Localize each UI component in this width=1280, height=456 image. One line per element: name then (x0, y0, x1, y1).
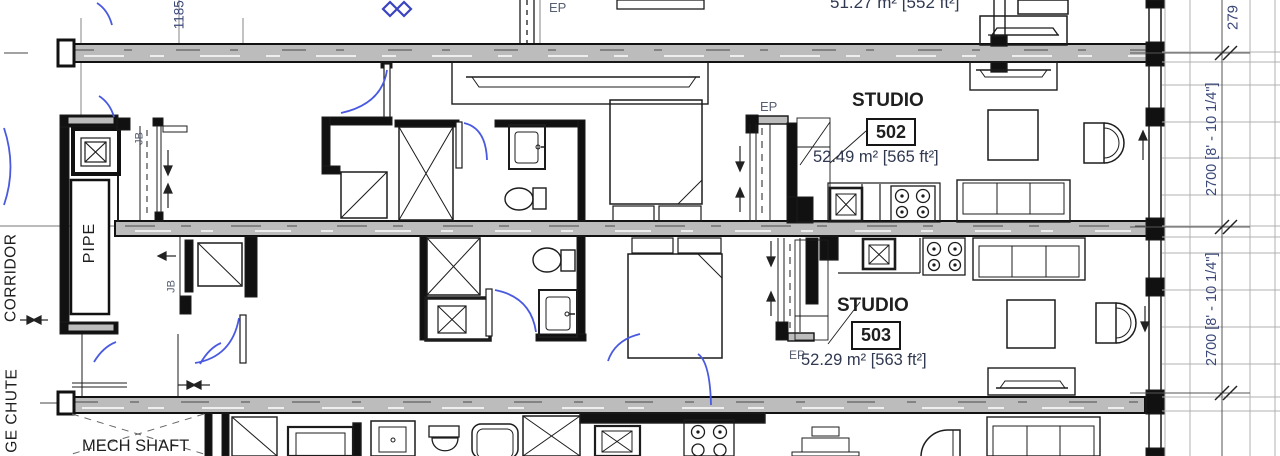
ep-closet-503 (776, 238, 818, 341)
plan-linework (0, 0, 1280, 456)
media-console-502 (452, 62, 708, 104)
tv-console-503 (988, 368, 1075, 395)
table-503 (1007, 300, 1055, 348)
kitchen-503 (820, 236, 965, 275)
unit-503-area: 52.29 m² [563 ft²] (801, 352, 927, 369)
sink-502 (509, 125, 546, 169)
diamond-symbol (383, 2, 411, 16)
pipe-label: PIPE (82, 208, 98, 278)
sofa-502 (957, 180, 1070, 222)
sofa-bottom (987, 417, 1100, 456)
unit-502-area: 52.49 m² [565 ft²] (813, 149, 939, 166)
tv-console-502-north (970, 62, 1057, 90)
unit-502-number-box: 502 (866, 118, 916, 146)
bottom-unit-fixtures (232, 413, 1100, 456)
corridor-label: CORRIDOR (3, 223, 19, 333)
bed-502 (610, 100, 702, 221)
stove-bottom (684, 420, 734, 456)
unit-502-closet-nook (322, 117, 392, 218)
closet-503 (427, 238, 480, 295)
ep-label-502: EP (760, 100, 777, 113)
mech-shaft-label: MECH SHAFT (82, 438, 189, 455)
window-wall (1146, 0, 1164, 456)
jb-label-503: JB (167, 275, 178, 299)
toilet-502 (505, 188, 546, 210)
unit-502-bathroom (495, 120, 585, 221)
dimension-top-left: 1185 (172, 0, 186, 35)
tub-bottom (472, 424, 518, 456)
dimension-right-top: 279 (1226, 0, 1241, 38)
unit-502-name: STUDIO (852, 91, 924, 110)
dimension-right-upper: 2700 [8' - 10 1/4"] (1205, 59, 1220, 219)
garbage-chute-label: GE CHUTE (4, 361, 20, 456)
unit-503-number-box: 503 (851, 321, 901, 350)
washer-503 (426, 298, 490, 340)
washer-bottom (595, 426, 640, 456)
armchair-502 (1084, 123, 1124, 163)
closet-bottom (523, 416, 580, 456)
jb-shaft-502 (117, 118, 187, 221)
toilet-bottom (429, 426, 459, 451)
wall-middle (115, 221, 1152, 236)
unit-503-number: 503 (861, 325, 891, 346)
kitchen-502 (828, 183, 940, 222)
sofa-503 (973, 238, 1085, 280)
armchair-bottom (921, 430, 960, 456)
stove-503 (923, 238, 965, 275)
corridor-lower-door (72, 334, 178, 397)
sink-bottom (371, 421, 415, 456)
wall-bottom (58, 392, 1145, 414)
sink-503 (539, 290, 577, 337)
kitchen-sink-502 (830, 188, 862, 221)
unit-502-wardrobe (395, 120, 462, 220)
floor-plan-sheet: CORRIDOR GE CHUTE PIPE MECH SHAFT JB JB … (0, 0, 1280, 456)
ep-closet-502 (746, 115, 830, 223)
unit-502-number: 502 (876, 122, 906, 143)
upper-unit-area: 51.27 m² [552 ft²] (830, 0, 959, 11)
jb-label-502: JB (135, 127, 146, 151)
kitchen-sink-503 (863, 239, 895, 269)
elevator-shaft (73, 129, 119, 174)
chair-bottom (792, 427, 859, 456)
armchair-503 (1096, 303, 1136, 343)
bed-503 (628, 238, 722, 358)
unit-503-name: STUDIO (837, 296, 909, 315)
dimension-right-lower: 2700 [8' - 10 1/4"] (1205, 229, 1220, 389)
table-502 (988, 110, 1038, 160)
ep-label-upper: EP (549, 1, 566, 14)
stove-502 (891, 186, 935, 221)
unit-503-bathroom (420, 236, 586, 341)
toilet-503 (533, 248, 575, 272)
